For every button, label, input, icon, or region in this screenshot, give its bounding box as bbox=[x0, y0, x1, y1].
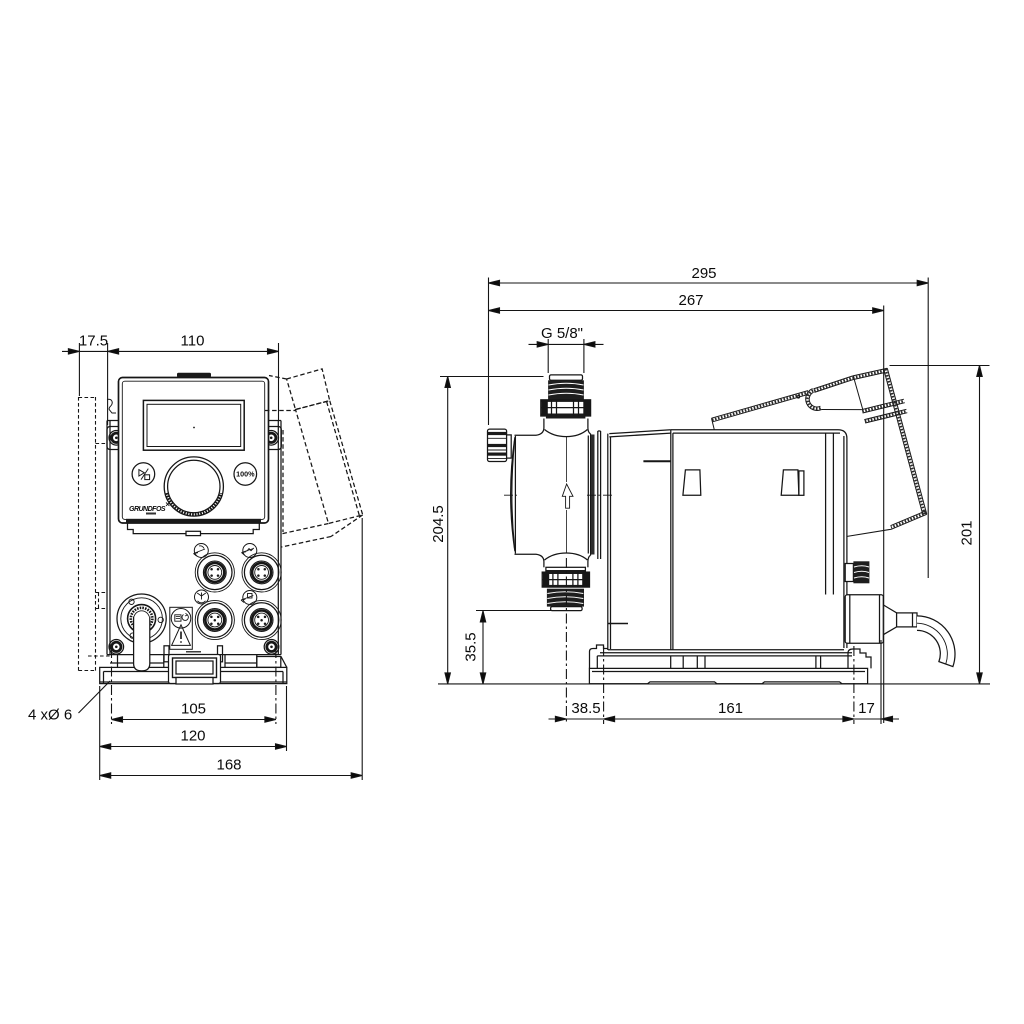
svg-text:267: 267 bbox=[678, 292, 703, 309]
svg-text:105: 105 bbox=[181, 701, 206, 718]
svg-text:GRUNDFOS: GRUNDFOS bbox=[129, 506, 166, 513]
svg-text:204.5: 204.5 bbox=[430, 505, 447, 543]
svg-text:161: 161 bbox=[718, 700, 743, 717]
svg-text:4 xØ 6: 4 xØ 6 bbox=[28, 707, 72, 724]
svg-text:120: 120 bbox=[180, 728, 205, 745]
svg-text:17.5: 17.5 bbox=[79, 333, 108, 350]
svg-text:17: 17 bbox=[858, 700, 875, 717]
svg-text:100%: 100% bbox=[236, 470, 255, 479]
svg-text:G 5/8": G 5/8" bbox=[541, 325, 583, 342]
svg-text:168: 168 bbox=[216, 757, 241, 774]
svg-text:295: 295 bbox=[691, 265, 716, 282]
svg-text:110: 110 bbox=[181, 333, 205, 350]
svg-text:201: 201 bbox=[959, 520, 976, 545]
svg-text:35.5: 35.5 bbox=[463, 632, 480, 661]
svg-text:38.5: 38.5 bbox=[571, 700, 600, 717]
